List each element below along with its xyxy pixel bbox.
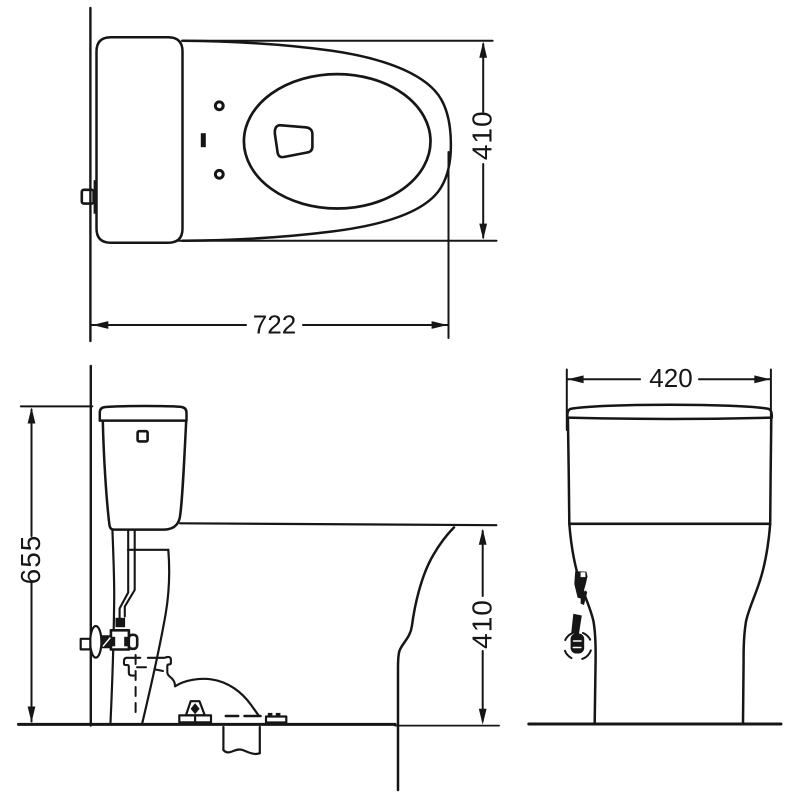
svg-text:410: 410: [466, 599, 497, 649]
svg-text:655: 655: [15, 535, 46, 585]
svg-text:410: 410: [466, 110, 497, 160]
svg-text:420: 420: [649, 363, 692, 393]
svg-text:722: 722: [253, 309, 296, 339]
